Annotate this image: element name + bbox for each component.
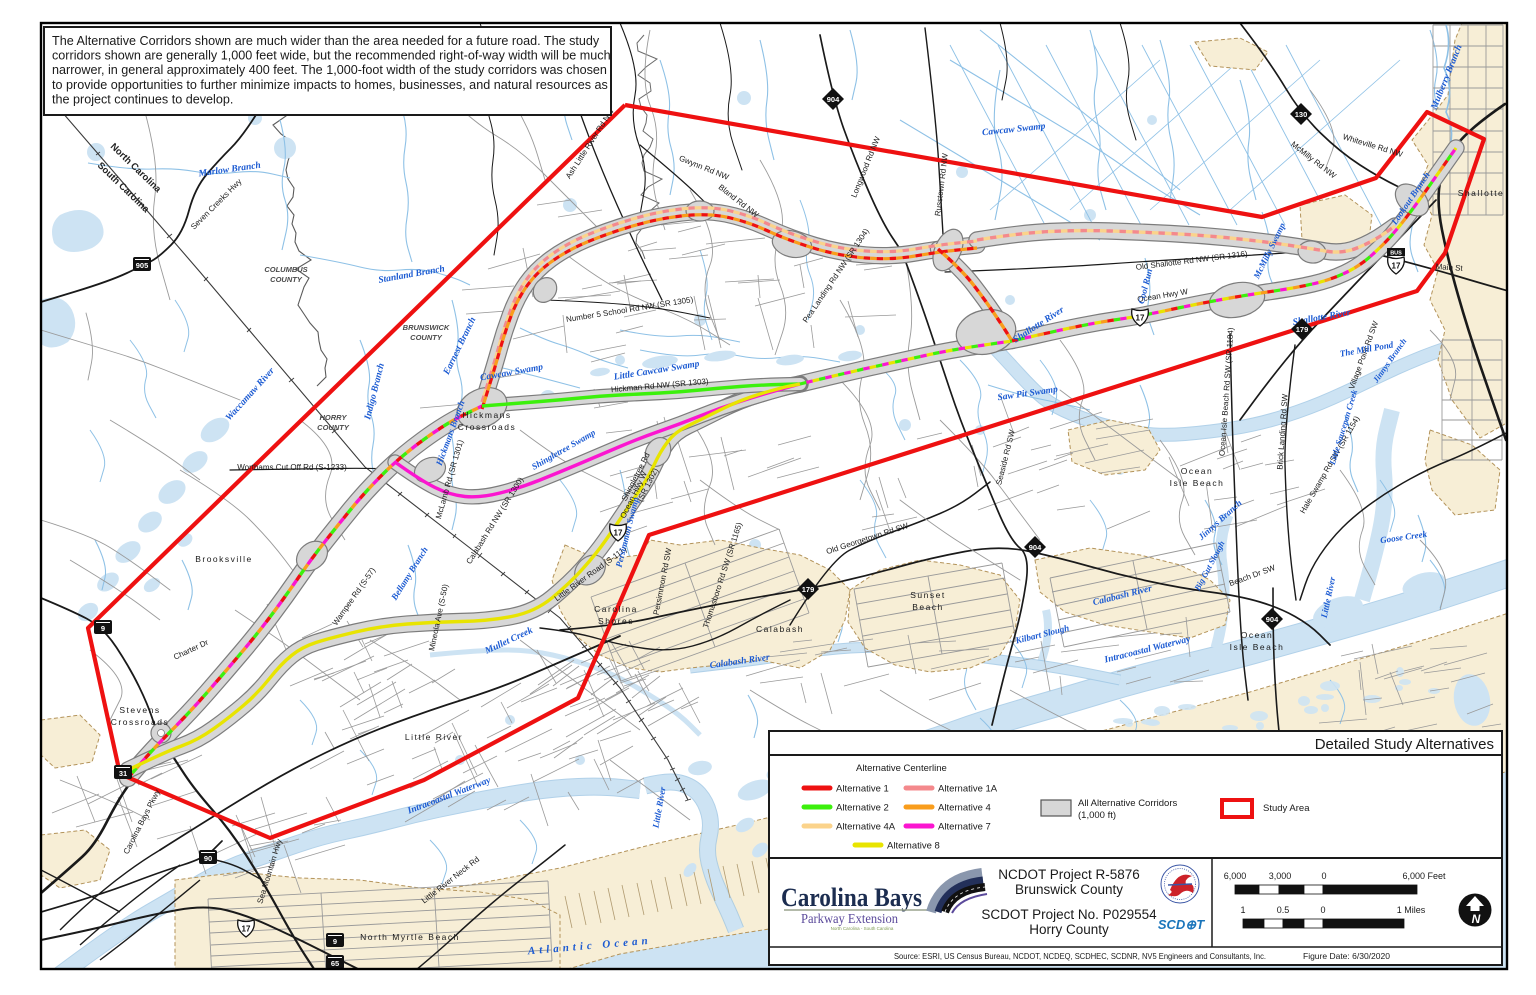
svg-text:(1,000 ft): (1,000 ft) (1078, 810, 1116, 821)
svg-text:90: 90 (204, 854, 212, 863)
svg-text:9: 9 (101, 624, 105, 633)
svg-text:Parkway Extension: Parkway Extension (801, 912, 898, 927)
svg-text:to provide opportunities to fu: to provide opportunities to further mini… (52, 78, 608, 92)
svg-text:9: 9 (333, 937, 337, 946)
svg-text:0: 0 (1321, 871, 1326, 881)
svg-text:17: 17 (242, 925, 251, 934)
svg-text:Crossroads: Crossroads (458, 422, 516, 432)
svg-text:3,000: 3,000 (1269, 871, 1292, 881)
svg-text:HORRY: HORRY (320, 413, 348, 422)
svg-text:Stevens: Stevens (119, 705, 160, 715)
svg-text:1 Miles: 1 Miles (1397, 905, 1426, 915)
svg-text:SCD⊕T: SCD⊕T (1158, 917, 1205, 932)
svg-text:Ocean: Ocean (1241, 630, 1274, 640)
svg-text:SCDOT Project No. P029554: SCDOT Project No. P029554 (981, 907, 1157, 922)
svg-text:COLUMBUS: COLUMBUS (264, 265, 307, 274)
svg-text:BUS: BUS (1390, 251, 1402, 257)
svg-text:6,000 Feet: 6,000 Feet (1402, 871, 1446, 881)
svg-text:179: 179 (1296, 325, 1309, 334)
svg-text:904: 904 (827, 95, 840, 104)
svg-text:179: 179 (802, 585, 815, 594)
svg-text:904: 904 (1266, 615, 1279, 624)
svg-text:COUNTY: COUNTY (270, 275, 303, 284)
svg-text:The Alternative Corridors show: The Alternative Corridors shown are much… (52, 34, 600, 48)
svg-text:Alternative 4: Alternative 4 (938, 803, 991, 814)
svg-text:Shores: Shores (598, 616, 634, 626)
svg-text:Carolina: Carolina (594, 604, 638, 614)
svg-text:COUNTY: COUNTY (410, 333, 443, 342)
svg-text:17: 17 (1392, 262, 1401, 271)
svg-text:NCDOT Project R-5876: NCDOT Project R-5876 (998, 867, 1140, 882)
svg-text:BRUNSWICK: BRUNSWICK (403, 323, 450, 332)
svg-text:0.5: 0.5 (1277, 905, 1290, 915)
svg-text:North Carolina - South Carolin: North Carolina - South Carolina (831, 926, 894, 931)
svg-text:17: 17 (1136, 314, 1145, 323)
svg-text:Isle Beach: Isle Beach (1170, 478, 1225, 488)
svg-text:Source: ESRI, US Census Bureau: Source: ESRI, US Census Bureau, NCDOT, N… (894, 951, 1266, 961)
svg-text:Ocean: Ocean (1181, 466, 1214, 476)
svg-text:Little River: Little River (405, 732, 463, 742)
svg-text:COUNTY: COUNTY (317, 423, 350, 432)
svg-text:130: 130 (1295, 110, 1308, 119)
svg-text:31: 31 (119, 769, 127, 778)
svg-text:Study Area: Study Area (1263, 803, 1310, 814)
svg-text:6,000: 6,000 (1224, 871, 1247, 881)
svg-text:Alternative 8: Alternative 8 (887, 841, 940, 852)
svg-text:Isle Beach: Isle Beach (1230, 642, 1285, 652)
svg-text:N: N (1472, 912, 1481, 926)
svg-text:Horry County: Horry County (1029, 922, 1109, 937)
svg-text:Alternative 7: Alternative 7 (938, 822, 991, 833)
svg-text:narrower, in general approxima: narrower, in general approximately 400 f… (52, 63, 607, 77)
svg-text:904: 904 (1029, 543, 1042, 552)
svg-text:Detailed Study Alternatives: Detailed Study Alternatives (1315, 736, 1494, 753)
svg-text:Worthams Cut Off Rd (S-1233): Worthams Cut Off Rd (S-1233) (237, 463, 347, 472)
svg-text:Hickmans: Hickmans (462, 410, 511, 420)
svg-text:corridors shown are generally: corridors shown are generally 1,000 feet… (52, 49, 611, 63)
svg-text:Alternative Centerline: Alternative Centerline (856, 763, 947, 774)
svg-text:Shallotte: Shallotte (1458, 188, 1505, 198)
svg-text:the project continues to devel: the project continues to develop. (52, 92, 233, 106)
svg-text:Sunset: Sunset (910, 590, 945, 600)
svg-text:All Alternative Corridors: All Alternative Corridors (1078, 798, 1178, 809)
svg-text:Brooksville: Brooksville (195, 554, 253, 564)
svg-text:1: 1 (1240, 905, 1245, 915)
svg-text:Brunswick County: Brunswick County (1015, 882, 1123, 897)
svg-text:Beach: Beach (912, 602, 944, 612)
svg-text:905: 905 (136, 261, 149, 270)
svg-text:Figure Date: 6/30/2020: Figure Date: 6/30/2020 (1303, 951, 1390, 961)
svg-text:Calabash: Calabash (756, 624, 804, 634)
svg-text:Crossroads: Crossroads (111, 717, 169, 727)
svg-text:Alternative 1A: Alternative 1A (938, 784, 998, 795)
svg-text:Alternative 2: Alternative 2 (836, 803, 889, 814)
svg-text:Alternative 4A: Alternative 4A (836, 822, 896, 833)
svg-text:0: 0 (1320, 905, 1325, 915)
svg-text:Alternative 1: Alternative 1 (836, 784, 889, 795)
svg-text:65: 65 (331, 959, 339, 968)
svg-text:17: 17 (614, 529, 623, 538)
svg-text:North Myrtle Beach: North Myrtle Beach (360, 932, 460, 942)
svg-text:Carolina Bays: Carolina Bays (781, 883, 922, 912)
